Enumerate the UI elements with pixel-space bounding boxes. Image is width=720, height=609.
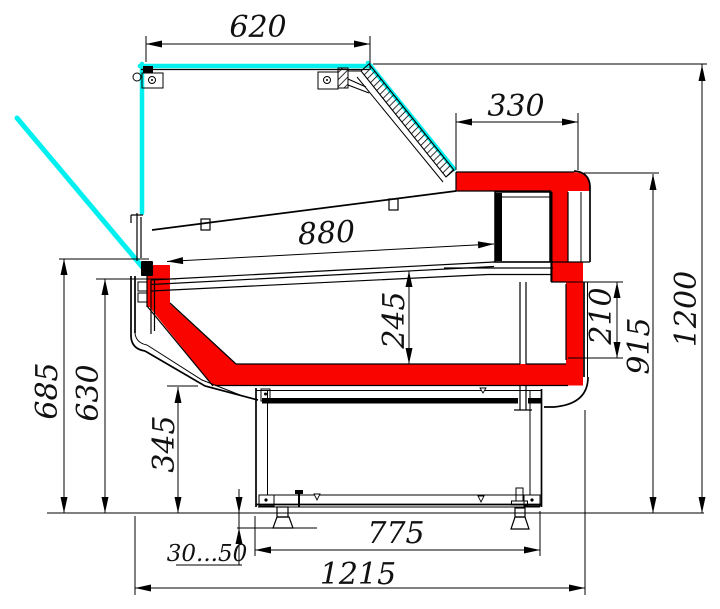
dim-775-label: 775 (367, 516, 424, 551)
sloped-glass-hatch (361, 64, 454, 177)
weld-marks (314, 388, 486, 502)
deck-lines (151, 262, 552, 291)
dim-620-label: 620 (229, 10, 286, 45)
dim-210-label: 210 (584, 287, 619, 345)
base-frame (256, 388, 542, 507)
dimension-620: 620 (146, 10, 370, 70)
dim-345-label: 345 (147, 415, 182, 472)
back-lower-red-panel (566, 281, 583, 369)
glass-clip-left (201, 219, 210, 230)
back-upper-red-panel (551, 191, 568, 263)
case-contours (131, 64, 590, 529)
dim-880-label: 880 (297, 215, 356, 253)
dim-685-label: 685 (30, 362, 65, 419)
display-case-section-drawing: 620 330 880 245 210 915 1200 (0, 0, 720, 609)
technical-drawing-page: 620 330 880 245 210 915 1200 (0, 0, 720, 609)
dimension-775: 775 (255, 511, 540, 556)
dimension-245: 245 (377, 271, 413, 364)
well-bottom-red-panel (213, 364, 583, 386)
dim-330-label: 330 (487, 89, 544, 124)
dim-30-50-label: 30...50 (167, 541, 247, 567)
front-glass-open-line (17, 118, 144, 269)
worktop-red-corner (574, 172, 590, 191)
dim-245-label: 245 (377, 291, 412, 349)
dim-1200-label: 1200 (669, 271, 704, 347)
glass-clip-right (389, 199, 398, 210)
worktop-red-panel (456, 172, 574, 191)
dim-1215-label: 1215 (320, 557, 396, 592)
dim-630-label: 630 (71, 364, 106, 421)
sloped-glass-inner-line (357, 77, 443, 182)
dimension-1215: 1215 (135, 410, 585, 595)
back-step-red-panel (551, 262, 583, 282)
dimension-30-50: 30...50 (167, 489, 317, 567)
dim-915-label: 915 (622, 317, 657, 374)
dimension-330: 330 (456, 89, 578, 170)
dimension-345: 345 (147, 386, 198, 513)
